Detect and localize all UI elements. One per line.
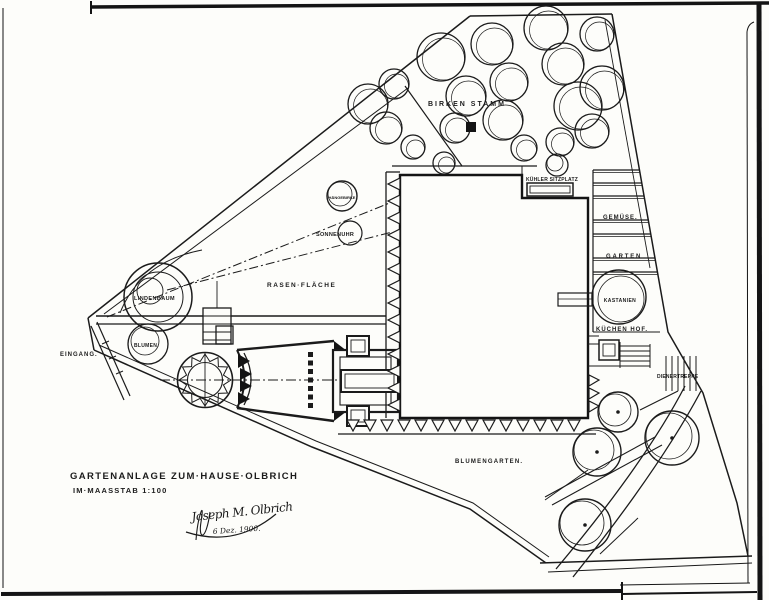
- lawn-stair: [203, 281, 233, 344]
- label-chestnut: KASTANIEN: [604, 298, 636, 304]
- title-block: GARTENANLAGE ZUM·HAUSE·OLBRICH IM·MAASST…: [70, 471, 298, 495]
- plan-scale: IM·MAASSTAB 1:100: [73, 486, 167, 495]
- label-birch-grove: BIRKEN STAMM: [428, 101, 506, 108]
- label-entrance: EINGANG.: [60, 352, 98, 358]
- cool-seat-terrace: [527, 154, 573, 196]
- plant-tubs: [308, 352, 313, 408]
- signature-name: Joseph M. Olbrich: [188, 499, 293, 524]
- chestnut-tree: [592, 270, 646, 324]
- label-hanging-birch: HÄNGEBIRKE: [329, 195, 356, 200]
- label-flowers: BLUMEN.: [134, 343, 159, 349]
- label-flower-garden: BLUMENGARTEN.: [455, 459, 523, 465]
- label-lawn: RASEN·FLÄCHE: [267, 281, 336, 289]
- labels: BIRKEN STAMM KÜHLER SITZPLATZ GEMÜSE. GA…: [60, 101, 699, 465]
- plan-sheet: BIRKEN STAMM KÜHLER SITZPLATZ GEMÜSE. GA…: [0, 0, 769, 600]
- grove-marker: [466, 122, 476, 132]
- garden-plan-drawing: BIRKEN STAMM KÜHLER SITZPLATZ GEMÜSE. GA…: [0, 0, 769, 600]
- west-trees: [124, 181, 362, 364]
- vegetable-beds: [593, 170, 657, 332]
- label-servants-stairs: DIENERTREPPE: [657, 374, 699, 380]
- sheet-frame: [1, 1, 769, 600]
- signature-block: Joseph M. Olbrich 6 Dez. 1900.: [186, 499, 293, 540]
- label-linden: LINDENBAUM: [134, 296, 175, 302]
- label-kitchen-yard: KÜCHEN HOF.: [596, 326, 648, 333]
- label-sundial: SONNENUHR: [316, 232, 354, 238]
- pergola: [237, 341, 347, 421]
- veranda-basin: [333, 336, 398, 426]
- birch-grove: [348, 6, 624, 174]
- plan-title: GARTENANLAGE ZUM·HAUSE·OLBRICH: [70, 471, 298, 482]
- signature-date: 6 Dez. 1900.: [213, 524, 261, 536]
- house-footprint: [400, 166, 588, 418]
- label-garden: GARTEN: [606, 254, 642, 260]
- label-cool-seat: KÜHLER SITZPLATZ: [526, 176, 578, 183]
- label-vegetables: GEMÜSE.: [603, 214, 638, 221]
